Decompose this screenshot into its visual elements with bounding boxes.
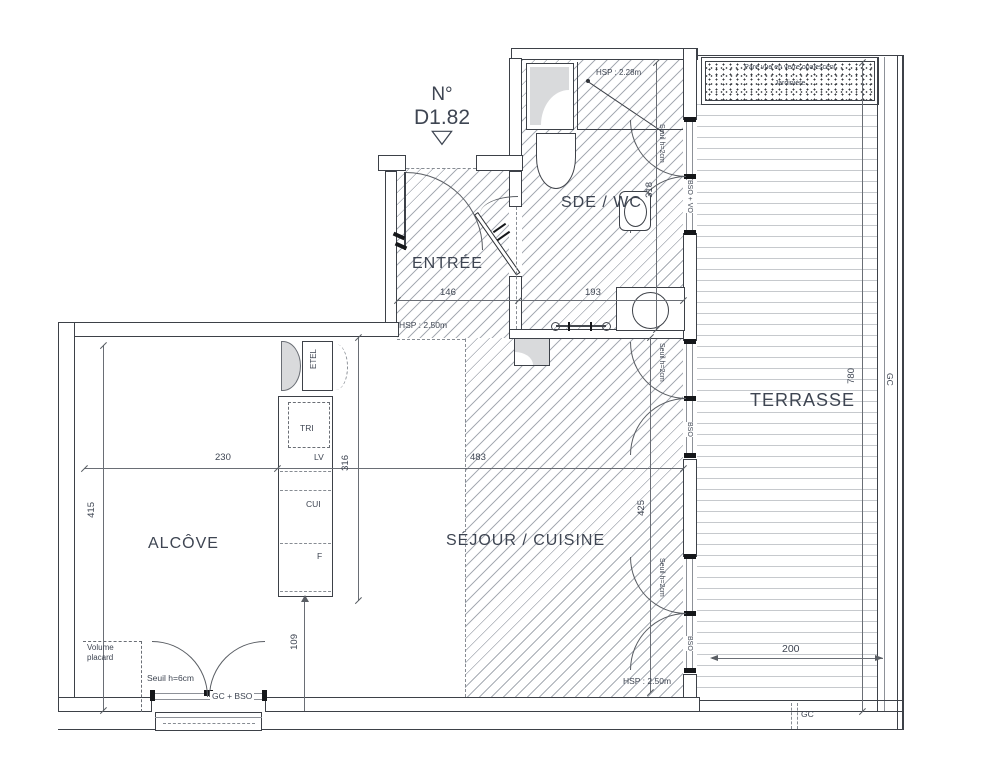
towel-radiator-foot-b [590, 322, 592, 331]
planter-screen-label: Pare vue en verre opalescent [701, 64, 879, 71]
dim-entree-width: 146 [440, 287, 456, 298]
dim-arrow-left [710, 655, 718, 661]
alcove-threshold-dash [163, 723, 255, 724]
tri-label: TRI [300, 423, 314, 433]
etel-door-swing-dash [333, 344, 348, 390]
etel-label: ETEL [309, 349, 318, 369]
seuil-window-mid-label: Seuil h=2cm [658, 343, 665, 382]
towel-radiator-foot-a [568, 322, 570, 331]
hsp-sde-label: HSP : 2.28m [596, 68, 641, 77]
counter-divider-4 [280, 591, 331, 592]
gc-right-label: GC [885, 373, 895, 386]
dim-line-entree-sde [397, 300, 683, 301]
gc-bottom-label: GC [801, 709, 814, 719]
volume-placard-label: Volume placard [87, 643, 114, 663]
towel-radiator-end-right [602, 322, 611, 331]
seuil-window-bot-label: Seuil h=2cm [658, 558, 665, 597]
washing-machine-drum [632, 292, 669, 329]
wall-entree-left [385, 171, 397, 337]
wall-entry-top-right [476, 155, 523, 171]
terrace-outer-wall-inner [897, 55, 898, 730]
hsp-entree-label: HSP : 2.50m [399, 320, 447, 330]
wall-entry-top-left [378, 155, 406, 171]
wall-bottom-right [265, 697, 700, 712]
unit-prefix: N° [404, 84, 480, 106]
alcove-door-arc-right [209, 641, 265, 697]
shower-tray [526, 63, 574, 130]
f-label: F [317, 551, 322, 561]
room-label-sde-wc: SDE / WC [561, 194, 642, 212]
wall-alcove-top [58, 322, 399, 337]
bso-bot-label: BSO [686, 636, 693, 651]
dim-line-sejour-depth [650, 337, 651, 693]
dim-terrasse-depth: 780 [846, 368, 857, 384]
alcove-door-threshold [155, 712, 262, 731]
gc-joint-dash-left [791, 703, 792, 729]
dim-arrow-right [875, 655, 883, 661]
dim-kitchen-length: 316 [340, 455, 351, 471]
dim-bay-width: 109 [289, 634, 300, 650]
counter-divider-2 [280, 490, 331, 491]
terrace-outer-wall-outer [902, 55, 904, 730]
cui-label: CUI [306, 499, 321, 509]
dim-sejour-depth: 425 [636, 500, 647, 516]
kitchen-sink [514, 338, 550, 366]
washing-machine [616, 287, 685, 331]
dim-arrow-bay [301, 595, 309, 602]
dim-sde-depth: 318 [644, 182, 655, 198]
alcove-threshold-line [155, 717, 262, 718]
terrace-top-edge [697, 55, 903, 56]
dim-line-sde-depth [656, 62, 657, 330]
dim-line-kitchen-length [358, 337, 359, 601]
towel-radiator-end-left [551, 322, 560, 331]
wall-right-a [683, 48, 697, 120]
room-label-terrasse: TERRASSE [750, 390, 855, 411]
terrace-bottom-line1 [697, 700, 903, 701]
dim-sde-width: 193 [585, 287, 601, 298]
hsp-sejour-label: HSP : 2.50m [623, 676, 671, 686]
room-label-sejour-cuisine: SÉJOUR / CUISINE [446, 532, 605, 550]
bso-vo-label: BSO + VO [686, 180, 693, 213]
entry-ceiling-dash [406, 168, 476, 169]
counter-divider-1 [280, 471, 331, 472]
hsp-zone-dash-v [465, 339, 466, 697]
terrace-bottom-line2 [683, 711, 903, 712]
dim-line-terrasse-door [712, 658, 883, 659]
wall-right-b [683, 233, 697, 341]
dim-alcove-width: 230 [215, 452, 231, 463]
planter-label: Jardinière [701, 80, 879, 87]
dim-sejour-width: 483 [470, 452, 486, 463]
dim-tick [355, 597, 362, 604]
etel-door-panel [281, 341, 301, 391]
unit-pointer-icon: ▽ [385, 126, 499, 149]
wall-sde-top [511, 48, 698, 60]
dim-line-alcove-sejour [84, 468, 683, 469]
hsp-zone-dash-h [397, 339, 465, 340]
kitchen-sink-curve [515, 352, 533, 365]
dim-alcove-depth: 415 [86, 502, 97, 518]
room-label-entree: ENTRÉE [412, 255, 483, 273]
sde-corridor-dash [516, 207, 517, 329]
wall-left-outer [58, 322, 75, 712]
terrace-parapet-inner [877, 57, 878, 712]
dim-terrasse-door: 200 [782, 643, 800, 655]
wall-right-c [683, 459, 697, 557]
floor-plan: Pare vue en verre opalescent Jardinière [0, 0, 1005, 767]
bso-mid-label: BSO [686, 422, 693, 437]
seuil-window-top-label: Seuil h=2cm [658, 124, 665, 163]
gc-joint-dash-right [797, 703, 798, 729]
towel-radiator [556, 325, 606, 327]
gc-bso-label: GC + BSO [210, 691, 254, 701]
counter-divider-3 [280, 543, 331, 544]
dim-line-terrasse-depth [862, 62, 863, 712]
dim-line-bay [304, 598, 305, 711]
room-label-alcove: ALCÔVE [148, 535, 219, 553]
alcove-door-arc-left [152, 641, 208, 697]
lv-label: LV [314, 452, 324, 462]
seuil-alcove-label: Seuil h=6cm [147, 673, 194, 683]
